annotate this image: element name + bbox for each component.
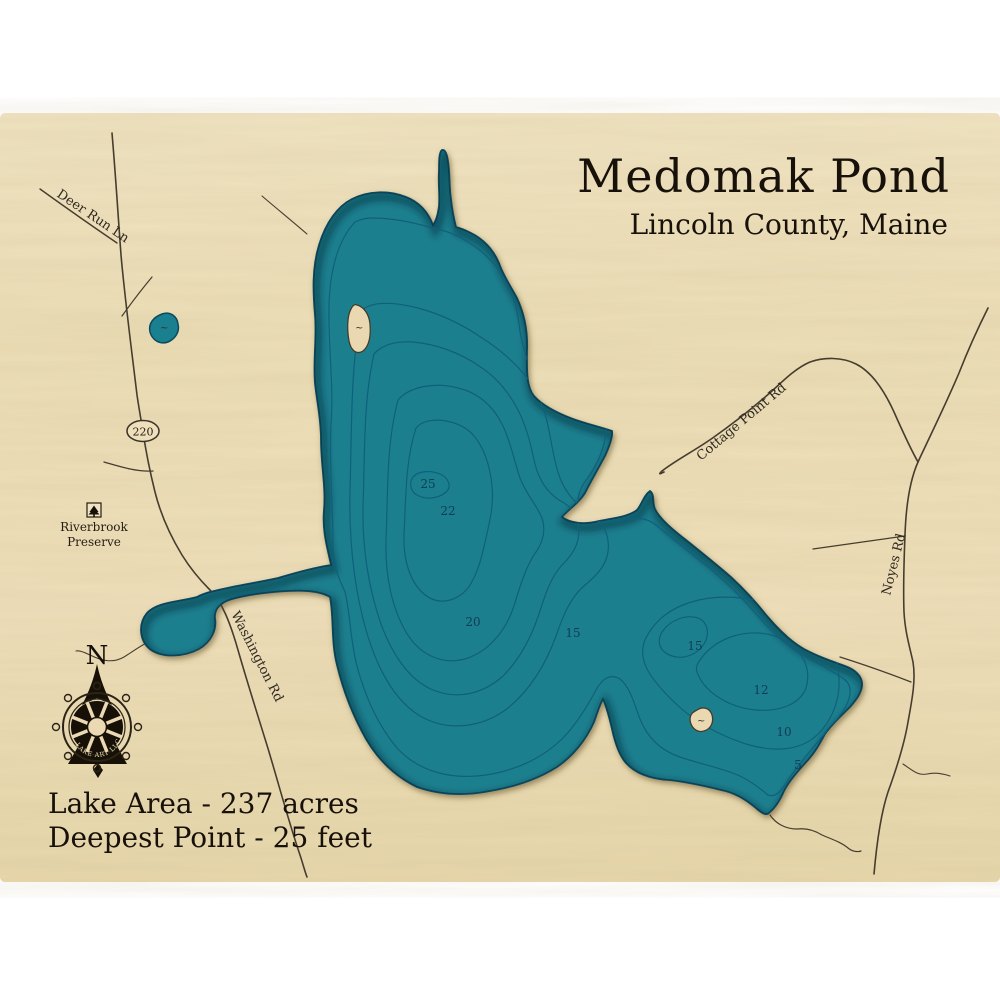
route-shield-number: 220	[133, 426, 154, 439]
map-subtitle: Lincoln County, Maine	[630, 208, 948, 241]
depth-label-15-east: 15	[687, 639, 702, 653]
depth-label-20: 20	[465, 615, 480, 629]
depth-label-22: 22	[440, 504, 455, 518]
stats-block: Lake Area - 237 acres Deepest Point - 25…	[48, 787, 373, 854]
depth-label-5: 5	[794, 758, 802, 772]
preserve-label-line1: Riverbrook	[60, 520, 128, 534]
depth-label-15-main: 15	[565, 626, 580, 640]
depth-label-25: 25	[420, 477, 435, 491]
deepest-point-text: Deepest Point - 25 feet	[48, 821, 373, 854]
depth-label-10: 10	[776, 725, 791, 739]
title-block: Medomak Pond Lincoln County, Maine	[577, 149, 950, 241]
depth-label-12: 12	[753, 683, 768, 697]
preserve-label-line2: Preserve	[67, 535, 121, 549]
lake-map-canvas: ~ ~ ~ 25 22 20 15 15 12 10 5 Deer Run Ln…	[0, 0, 1000, 1000]
medomak-pond-map-page: ~ ~ ~ 25 22 20 15 15 12 10 5 Deer Run Ln…	[0, 0, 1000, 1000]
island-north-mark: ~	[355, 323, 363, 334]
wheel-center-hole	[88, 718, 107, 737]
small-pond-mark: ~	[160, 323, 168, 334]
route-shield-220: 220	[127, 421, 159, 442]
lake-area-text: Lake Area - 237 acres	[48, 787, 359, 820]
island-east-mark: ~	[697, 716, 705, 727]
map-title: Medomak Pond	[577, 149, 950, 203]
